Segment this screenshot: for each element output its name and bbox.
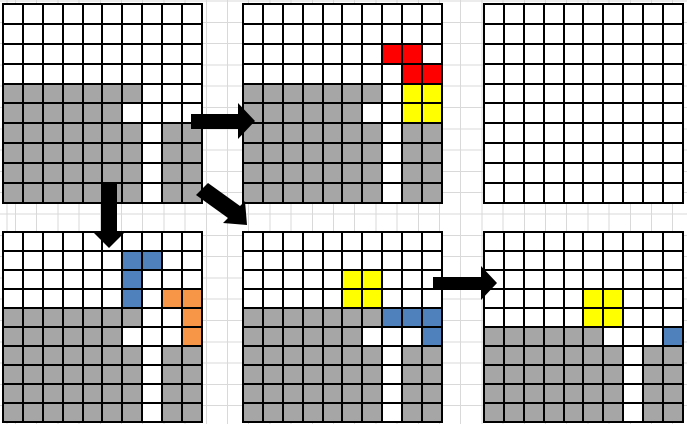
board-bottom-right-cell-r8c1 xyxy=(504,384,524,403)
board-bottom-right-cell-r0c5 xyxy=(583,232,603,251)
board-bottom-middle-cell-r2c0 xyxy=(243,270,263,289)
board-top-middle-cell-r7c1 xyxy=(263,143,283,163)
board-bottom-middle-cell-r0c4 xyxy=(323,232,343,251)
board-bottom-middle-cell-r0c6 xyxy=(362,232,382,251)
board-bottom-middle-cell-r5c5 xyxy=(342,327,362,346)
board-bottom-middle-cell-r8c0 xyxy=(243,384,263,403)
board-bottom-middle-cell-r6c7 xyxy=(382,346,402,365)
board-bottom-middle-cell-r3c4 xyxy=(323,289,343,308)
board-bottom-right-cell-r0c7 xyxy=(623,232,643,251)
board-bottom-left-cell-r5c9 xyxy=(182,327,202,346)
board-top-middle-cell-r5c5 xyxy=(342,103,362,123)
board-bottom-left-cell-r5c5 xyxy=(102,327,122,346)
board-bottom-right-cell-r6c7 xyxy=(623,346,643,365)
board-bottom-right-cell-r1c1 xyxy=(504,251,524,270)
board-top-left-cell-r1c6 xyxy=(122,24,142,44)
board-bottom-left-cell-r3c2 xyxy=(43,289,63,308)
board-bottom-middle-cell-r5c0 xyxy=(243,327,263,346)
board-bottom-left-cell-r4c4 xyxy=(83,308,103,327)
board-top-right-cell-r7c5 xyxy=(583,143,603,163)
board-top-right-cell-r0c8 xyxy=(643,4,663,24)
board-top-middle-cell-r9c6 xyxy=(362,183,382,203)
board-top-right-cell-r6c8 xyxy=(643,123,663,143)
board-top-right-cell-r1c2 xyxy=(524,24,544,44)
board-top-left-cell-r6c7 xyxy=(142,123,162,143)
board-top-left-cell-r3c3 xyxy=(63,64,83,84)
board-bottom-left-cell-r5c7 xyxy=(142,327,162,346)
board-top-right-cell-r7c7 xyxy=(623,143,643,163)
board-top-left-cell-r8c6 xyxy=(122,163,142,183)
board-top-right-cell-r8c6 xyxy=(603,163,623,183)
board-top-middle-cell-r0c8 xyxy=(402,4,422,24)
board-bottom-left-cell-r2c3 xyxy=(63,270,83,289)
board-bottom-left-cell-r2c2 xyxy=(43,270,63,289)
board-bottom-right-cell-r8c6 xyxy=(603,384,623,403)
board-bottom-middle-cell-r6c9 xyxy=(422,346,442,365)
board-bottom-left-cell-r8c1 xyxy=(23,384,43,403)
board-top-right-cell-r1c0 xyxy=(484,24,504,44)
board-top-right-cell-r8c5 xyxy=(583,163,603,183)
board-bottom-middle-cell-r7c7 xyxy=(382,365,402,384)
board-top-left-cell-r1c0 xyxy=(3,24,23,44)
board-top-middle-cell-r8c3 xyxy=(303,163,323,183)
board-top-right-cell-r5c9 xyxy=(663,103,683,123)
board-bottom-left-cell-r7c7 xyxy=(142,365,162,384)
board-top-middle-cell-r7c6 xyxy=(362,143,382,163)
board-top-left-cell-r9c5 xyxy=(102,183,122,203)
board-top-right-cell-r8c0 xyxy=(484,163,504,183)
board-top-middle-cell-r4c9 xyxy=(422,84,442,104)
board-top-right-cell-r2c6 xyxy=(603,44,623,64)
board-top-middle-cell-r2c2 xyxy=(283,44,303,64)
board-top-right-cell-r5c4 xyxy=(564,103,584,123)
board-top-left-cell-r5c0 xyxy=(3,103,23,123)
board-top-right-cell-r4c5 xyxy=(583,84,603,104)
board-bottom-right-cell-r2c0 xyxy=(484,270,504,289)
board-bottom-right-cell-r8c9 xyxy=(663,384,683,403)
board-bottom-right-cell-r1c4 xyxy=(564,251,584,270)
board-bottom-middle-cell-r7c3 xyxy=(303,365,323,384)
board-bottom-left-cell-r7c8 xyxy=(162,365,182,384)
board-bottom-middle-cell-r1c6 xyxy=(362,251,382,270)
board-top-middle-cell-r0c4 xyxy=(323,4,343,24)
board-top-left-cell-r8c5 xyxy=(102,163,122,183)
board-top-left-cell-r6c8 xyxy=(162,123,182,143)
board-top-left-cell-r7c6 xyxy=(122,143,142,163)
board-top-left-cell-r1c2 xyxy=(43,24,63,44)
board-bottom-middle-cell-r4c2 xyxy=(283,308,303,327)
board-top-left-cell-r6c5 xyxy=(102,123,122,143)
board-top-middle-cell-r3c3 xyxy=(303,64,323,84)
board-top-left xyxy=(2,3,203,204)
board-bottom-left-cell-r7c0 xyxy=(3,365,23,384)
board-top-left-cell-r8c4 xyxy=(83,163,103,183)
board-top-left-cell-r0c5 xyxy=(102,4,122,24)
board-bottom-middle-cell-r2c5 xyxy=(342,270,362,289)
board-top-right-cell-r7c3 xyxy=(544,143,564,163)
board-bottom-left-cell-r3c7 xyxy=(142,289,162,308)
board-bottom-left-cell-r7c6 xyxy=(122,365,142,384)
board-bottom-left-cell-r6c7 xyxy=(142,346,162,365)
board-bottom-left-cell-r9c8 xyxy=(162,403,182,422)
board-top-middle-cell-r4c6 xyxy=(362,84,382,104)
board-bottom-right-cell-r8c0 xyxy=(484,384,504,403)
board-top-middle-cell-r8c8 xyxy=(402,163,422,183)
board-bottom-middle-cell-r6c6 xyxy=(362,346,382,365)
board-bottom-left-cell-r2c5 xyxy=(102,270,122,289)
board-top-left-cell-r4c2 xyxy=(43,84,63,104)
board-top-left-cell-r1c5 xyxy=(102,24,122,44)
board-bottom-middle-cell-r1c7 xyxy=(382,251,402,270)
board-bottom-left-cell-r7c3 xyxy=(63,365,83,384)
board-bottom-right-cell-r3c9 xyxy=(663,289,683,308)
board-bottom-middle-cell-r1c1 xyxy=(263,251,283,270)
board-top-left-cell-r7c2 xyxy=(43,143,63,163)
board-bottom-middle-cell-r6c4 xyxy=(323,346,343,365)
board-top-middle-cell-r3c2 xyxy=(283,64,303,84)
board-top-middle-cell-r7c0 xyxy=(243,143,263,163)
board-top-right-cell-r3c4 xyxy=(564,64,584,84)
board-bottom-right-cell-r6c1 xyxy=(504,346,524,365)
board-bottom-left-cell-r0c1 xyxy=(23,232,43,251)
board-top-right-cell-r8c7 xyxy=(623,163,643,183)
board-bottom-left-cell-r4c5 xyxy=(102,308,122,327)
board-bottom-right-cell-r5c0 xyxy=(484,327,504,346)
board-top-left-cell-r5c7 xyxy=(142,103,162,123)
board-bottom-middle-cell-r0c9 xyxy=(422,232,442,251)
board-top-left-cell-r7c8 xyxy=(162,143,182,163)
board-bottom-left-cell-r5c1 xyxy=(23,327,43,346)
board-bottom-middle-cell-r9c3 xyxy=(303,403,323,422)
board-top-right-cell-r8c9 xyxy=(663,163,683,183)
board-top-right-cell-r4c4 xyxy=(564,84,584,104)
board-top-middle-cell-r5c1 xyxy=(263,103,283,123)
board-bottom-middle-cell-r8c4 xyxy=(323,384,343,403)
board-top-right-cell-r7c6 xyxy=(603,143,623,163)
board-bottom-middle-cell-r7c5 xyxy=(342,365,362,384)
board-top-left-cell-r5c6 xyxy=(122,103,142,123)
board-bottom-middle-cell-r5c6 xyxy=(362,327,382,346)
board-bottom-middle-cell-r9c9 xyxy=(422,403,442,422)
board-bottom-middle-cell-r4c9 xyxy=(422,308,442,327)
board-bottom-left-cell-r2c8 xyxy=(162,270,182,289)
board-bottom-right-cell-r0c4 xyxy=(564,232,584,251)
board-top-middle-cell-r5c4 xyxy=(323,103,343,123)
board-top-middle-cell-r5c0 xyxy=(243,103,263,123)
board-top-middle-cell-r0c1 xyxy=(263,4,283,24)
board-bottom-left-cell-r6c1 xyxy=(23,346,43,365)
board-bottom-left-cell-r2c6 xyxy=(122,270,142,289)
board-bottom-middle-cell-r8c7 xyxy=(382,384,402,403)
board-top-left-cell-r1c3 xyxy=(63,24,83,44)
board-top-left-cell-r5c1 xyxy=(23,103,43,123)
board-top-middle-cell-r0c3 xyxy=(303,4,323,24)
board-top-left-cell-r8c8 xyxy=(162,163,182,183)
board-bottom-right-cell-r6c6 xyxy=(603,346,623,365)
board-bottom-left-cell-r4c2 xyxy=(43,308,63,327)
board-bottom-middle-cell-r4c5 xyxy=(342,308,362,327)
board-bottom-left-cell-r7c1 xyxy=(23,365,43,384)
board-bottom-right-cell-r8c8 xyxy=(643,384,663,403)
board-bottom-middle-cell-r7c1 xyxy=(263,365,283,384)
board-top-middle-cell-r4c4 xyxy=(323,84,343,104)
board-bottom-right-cell-r0c9 xyxy=(663,232,683,251)
board-bottom-left-cell-r0c8 xyxy=(162,232,182,251)
board-top-left-cell-r6c3 xyxy=(63,123,83,143)
board-bottom-right-cell-r8c4 xyxy=(564,384,584,403)
board-top-left-cell-r8c3 xyxy=(63,163,83,183)
board-bottom-right-cell-r4c9 xyxy=(663,308,683,327)
board-top-right-cell-r0c1 xyxy=(504,4,524,24)
board-bottom-right-cell-r1c0 xyxy=(484,251,504,270)
board-top-right-cell-r1c1 xyxy=(504,24,524,44)
board-top-middle-cell-r8c4 xyxy=(323,163,343,183)
board-top-right-cell-r3c8 xyxy=(643,64,663,84)
board-top-middle-cell-r8c9 xyxy=(422,163,442,183)
board-top-right-cell-r6c9 xyxy=(663,123,683,143)
board-top-left-cell-r2c3 xyxy=(63,44,83,64)
board-bottom-right-cell-r3c6 xyxy=(603,289,623,308)
board-top-middle-cell-r8c5 xyxy=(342,163,362,183)
board-top-right-cell-r2c9 xyxy=(663,44,683,64)
board-top-left-cell-r9c6 xyxy=(122,183,142,203)
board-bottom-middle xyxy=(242,231,443,423)
board-top-middle-cell-r8c6 xyxy=(362,163,382,183)
board-top-right-cell-r1c8 xyxy=(643,24,663,44)
board-bottom-middle-cell-r3c1 xyxy=(263,289,283,308)
board-top-left-cell-r0c3 xyxy=(63,4,83,24)
board-bottom-left-cell-r1c8 xyxy=(162,251,182,270)
board-bottom-right-cell-r9c9 xyxy=(663,403,683,422)
board-top-middle-cell-r4c1 xyxy=(263,84,283,104)
board-bottom-right-cell-r4c8 xyxy=(643,308,663,327)
board-top-middle-cell-r6c2 xyxy=(283,123,303,143)
board-bottom-right-cell-r4c1 xyxy=(504,308,524,327)
board-top-middle-cell-r8c1 xyxy=(263,163,283,183)
board-top-left-cell-r3c5 xyxy=(102,64,122,84)
board-bottom-left-cell-r6c3 xyxy=(63,346,83,365)
board-bottom-right-cell-r5c7 xyxy=(623,327,643,346)
board-top-left-cell-r9c1 xyxy=(23,183,43,203)
board-top-right-cell-r0c5 xyxy=(583,4,603,24)
board-bottom-left-cell-r4c3 xyxy=(63,308,83,327)
board-top-right-cell-r6c5 xyxy=(583,123,603,143)
board-bottom-left-cell-r9c2 xyxy=(43,403,63,422)
board-top-middle-cell-r7c2 xyxy=(283,143,303,163)
board-top-middle-cell-r3c4 xyxy=(323,64,343,84)
board-bottom-right-cell-r3c1 xyxy=(504,289,524,308)
board-bottom-left-cell-r1c1 xyxy=(23,251,43,270)
board-top-middle-cell-r4c0 xyxy=(243,84,263,104)
board-bottom-middle-cell-r6c1 xyxy=(263,346,283,365)
board-top-right-cell-r4c6 xyxy=(603,84,623,104)
board-top-left-cell-r4c8 xyxy=(162,84,182,104)
board-bottom-left-cell-r0c0 xyxy=(3,232,23,251)
board-bottom-middle-cell-r7c8 xyxy=(402,365,422,384)
board-top-left-cell-r0c2 xyxy=(43,4,63,24)
board-top-left-cell-r0c4 xyxy=(83,4,103,24)
board-top-middle-cell-r9c1 xyxy=(263,183,283,203)
board-top-right-cell-r9c8 xyxy=(643,183,663,203)
board-top-middle-cell-r1c3 xyxy=(303,24,323,44)
board-top-middle-cell-r3c0 xyxy=(243,64,263,84)
board-bottom-middle-cell-r6c2 xyxy=(283,346,303,365)
board-top-right-cell-r2c7 xyxy=(623,44,643,64)
board-bottom-middle-cell-r7c2 xyxy=(283,365,303,384)
board-top-middle-cell-r0c0 xyxy=(243,4,263,24)
board-top-left-cell-r9c3 xyxy=(63,183,83,203)
board-bottom-middle-cell-r2c1 xyxy=(263,270,283,289)
board-top-left-cell-r5c8 xyxy=(162,103,182,123)
board-bottom-right-cell-r4c4 xyxy=(564,308,584,327)
board-top-right-cell-r6c4 xyxy=(564,123,584,143)
board-top-right-cell-r0c2 xyxy=(524,4,544,24)
board-bottom-left-cell-r1c0 xyxy=(3,251,23,270)
board-bottom-left-cell-r5c0 xyxy=(3,327,23,346)
board-bottom-right-cell-r9c1 xyxy=(504,403,524,422)
board-bottom-left-cell-r6c0 xyxy=(3,346,23,365)
board-bottom-middle-cell-r1c5 xyxy=(342,251,362,270)
board-top-middle-cell-r6c1 xyxy=(263,123,283,143)
board-bottom-left-cell-r8c8 xyxy=(162,384,182,403)
board-top-left-cell-r9c8 xyxy=(162,183,182,203)
board-bottom-left-cell-r0c6 xyxy=(122,232,142,251)
board-bottom-right-cell-r2c9 xyxy=(663,270,683,289)
board-bottom-left-cell-r4c8 xyxy=(162,308,182,327)
board-top-right-cell-r4c8 xyxy=(643,84,663,104)
board-bottom-middle-cell-r8c8 xyxy=(402,384,422,403)
board-top-middle-cell-r3c8 xyxy=(402,64,422,84)
board-bottom-right-cell-r2c7 xyxy=(623,270,643,289)
board-top-left-cell-r1c8 xyxy=(162,24,182,44)
board-top-middle-cell-r0c2 xyxy=(283,4,303,24)
board-top-left-cell-r1c1 xyxy=(23,24,43,44)
board-top-middle-cell-r6c5 xyxy=(342,123,362,143)
board-bottom-right-cell-r9c5 xyxy=(583,403,603,422)
board-bottom-left-cell-r1c7 xyxy=(142,251,162,270)
board-top-middle-cell-r5c7 xyxy=(382,103,402,123)
board-top-middle-cell-r1c8 xyxy=(402,24,422,44)
board-bottom-right-cell-r6c2 xyxy=(524,346,544,365)
board-top-middle-cell-r1c4 xyxy=(323,24,343,44)
board-top-left-cell-r4c4 xyxy=(83,84,103,104)
board-bottom-left-cell-r2c4 xyxy=(83,270,103,289)
board-bottom-right-cell-r1c3 xyxy=(544,251,564,270)
board-top-middle-cell-r7c9 xyxy=(422,143,442,163)
board-bottom-right-cell-r7c8 xyxy=(643,365,663,384)
board-top-middle-cell-r9c4 xyxy=(323,183,343,203)
board-bottom-left-cell-r1c4 xyxy=(83,251,103,270)
board-bottom-left-cell-r8c7 xyxy=(142,384,162,403)
board-top-left-cell-r9c4 xyxy=(83,183,103,203)
board-bottom-left-cell-r0c9 xyxy=(182,232,202,251)
board-top-middle-cell-r5c2 xyxy=(283,103,303,123)
board-top-left-cell-r4c9 xyxy=(182,84,202,104)
board-top-right-cell-r0c6 xyxy=(603,4,623,24)
board-top-right-cell-r5c2 xyxy=(524,103,544,123)
board-top-right-cell-r3c1 xyxy=(504,64,524,84)
board-bottom-left-cell-r7c5 xyxy=(102,365,122,384)
board-top-left-cell-r0c8 xyxy=(162,4,182,24)
board-top-left-cell-r8c1 xyxy=(23,163,43,183)
board-bottom-left-cell-r9c7 xyxy=(142,403,162,422)
board-top-middle-cell-r0c6 xyxy=(362,4,382,24)
board-top-middle-cell-r5c3 xyxy=(303,103,323,123)
board-bottom-left-cell-r2c0 xyxy=(3,270,23,289)
board-bottom-right-cell-r9c7 xyxy=(623,403,643,422)
board-bottom-right-cell-r7c5 xyxy=(583,365,603,384)
board-bottom-middle-cell-r2c6 xyxy=(362,270,382,289)
board-bottom-middle-cell-r8c2 xyxy=(283,384,303,403)
board-top-left-cell-r6c6 xyxy=(122,123,142,143)
board-top-right-cell-r4c9 xyxy=(663,84,683,104)
board-top-middle-cell-r4c2 xyxy=(283,84,303,104)
board-bottom-middle-cell-r1c3 xyxy=(303,251,323,270)
board-top-right-cell-r3c9 xyxy=(663,64,683,84)
board-bottom-right xyxy=(483,231,684,423)
board-bottom-right-cell-r3c7 xyxy=(623,289,643,308)
board-bottom-middle-cell-r9c1 xyxy=(263,403,283,422)
board-bottom-right-cell-r6c5 xyxy=(583,346,603,365)
board-bottom-middle-cell-r3c6 xyxy=(362,289,382,308)
board-top-right-cell-r8c3 xyxy=(544,163,564,183)
board-bottom-right-cell-r4c7 xyxy=(623,308,643,327)
board-bottom-left-cell-r3c9 xyxy=(182,289,202,308)
board-bottom-left-cell-r8c2 xyxy=(43,384,63,403)
board-bottom-right-cell-r5c6 xyxy=(603,327,623,346)
board-bottom-left-cell-r0c2 xyxy=(43,232,63,251)
board-top-right-cell-r4c2 xyxy=(524,84,544,104)
board-top-left-cell-r6c2 xyxy=(43,123,63,143)
board-bottom-right-cell-r1c6 xyxy=(603,251,623,270)
board-top-right-cell-r5c3 xyxy=(544,103,564,123)
board-bottom-middle-cell-r8c1 xyxy=(263,384,283,403)
board-top-middle-cell-r7c3 xyxy=(303,143,323,163)
board-bottom-right-cell-r3c8 xyxy=(643,289,663,308)
board-bottom-left-cell-r3c1 xyxy=(23,289,43,308)
board-bottom-left-cell-r6c6 xyxy=(122,346,142,365)
board-bottom-left-cell-r4c6 xyxy=(122,308,142,327)
board-top-left-cell-r3c8 xyxy=(162,64,182,84)
board-bottom-right-cell-r1c5 xyxy=(583,251,603,270)
board-bottom-right-cell-r4c3 xyxy=(544,308,564,327)
board-top-middle-cell-r3c1 xyxy=(263,64,283,84)
board-bottom-left-cell-r4c7 xyxy=(142,308,162,327)
board-bottom-left-cell-r3c5 xyxy=(102,289,122,308)
board-top-right-cell-r6c6 xyxy=(603,123,623,143)
board-top-left-cell-r2c6 xyxy=(122,44,142,64)
board-top-right-cell-r5c1 xyxy=(504,103,524,123)
board-top-right-cell-r6c1 xyxy=(504,123,524,143)
board-top-left-cell-r2c5 xyxy=(102,44,122,64)
board-top-left-cell-r3c9 xyxy=(182,64,202,84)
board-bottom-right-cell-r6c3 xyxy=(544,346,564,365)
board-top-middle-cell-r8c2 xyxy=(283,163,303,183)
board-bottom-right-cell-r5c4 xyxy=(564,327,584,346)
board-top-middle-cell-r5c8 xyxy=(402,103,422,123)
board-bottom-right-cell-r8c5 xyxy=(583,384,603,403)
board-top-middle xyxy=(242,3,443,204)
board-bottom-middle-cell-r0c7 xyxy=(382,232,402,251)
board-top-right-cell-r5c0 xyxy=(484,103,504,123)
board-top-left-cell-r6c9 xyxy=(182,123,202,143)
board-bottom-middle-cell-r1c8 xyxy=(402,251,422,270)
board-top-middle-cell-r6c4 xyxy=(323,123,343,143)
board-bottom-left-cell-r5c4 xyxy=(83,327,103,346)
board-bottom-middle-cell-r5c1 xyxy=(263,327,283,346)
board-top-middle-cell-r7c4 xyxy=(323,143,343,163)
board-bottom-middle-cell-r3c9 xyxy=(422,289,442,308)
